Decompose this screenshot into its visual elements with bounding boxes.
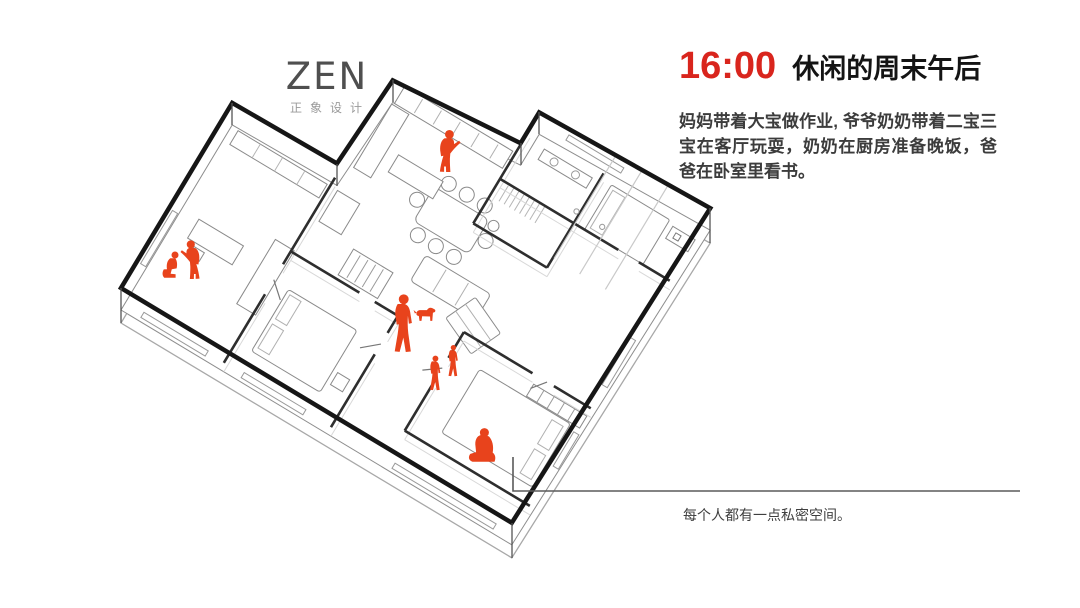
floor-plan-drawing	[0, 0, 1080, 608]
logo-subtext: 正象设计	[288, 99, 372, 116]
annotation-leader-line	[513, 457, 1020, 491]
annotation-caption: 每个人都有一点私密空间。	[683, 505, 851, 525]
page-title: 休闲的周末午后	[792, 47, 981, 86]
scene-description: 妈妈带着大宝做作业, 爷爷奶奶带着二宝三宝在客厅玩耍，奶奶在厨房准备晚饭，爸爸在…	[679, 109, 997, 184]
company-logo: ZEN 正象设计	[282, 58, 372, 116]
slide-header: 16:00 休闲的周末午后	[679, 46, 981, 88]
logo-text: ZEN	[282, 58, 372, 95]
time-label: 16:00	[679, 46, 776, 88]
